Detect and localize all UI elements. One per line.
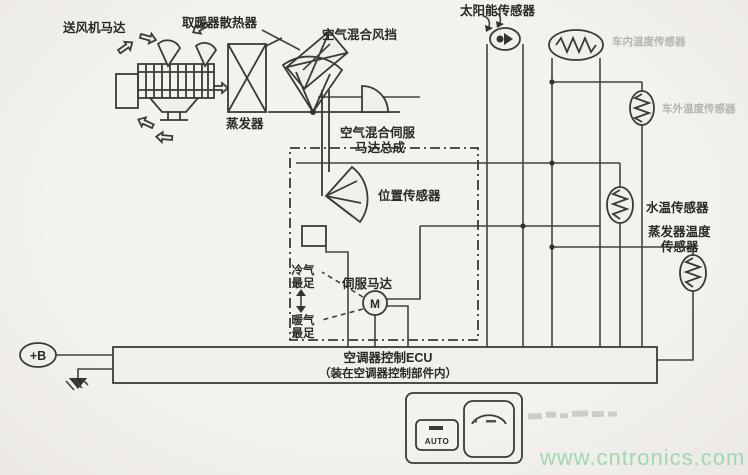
evaporator-label: 蒸发器 [226, 116, 264, 131]
position-sensor-drawing [302, 167, 368, 246]
control-panel: AUTO [406, 393, 522, 463]
air-mix-servo-label-2: 马达总成 [355, 140, 406, 155]
ground-icon [66, 378, 88, 390]
auto-button: AUTO [416, 420, 458, 450]
cabin-temp-sensor-icon [549, 30, 603, 60]
evaporator-drawing [228, 44, 266, 112]
position-sensor-label: 位置传感器 [378, 188, 441, 203]
cabin-temp-sensor-label: 车内温度传感器 [612, 35, 686, 48]
air-mix-damper-label: 空气混合风挡 [322, 27, 397, 42]
ac-system-diagram: M 冷气 最足 暖气 最足 [0, 0, 748, 475]
max-heat-label-2: 最足 [292, 327, 315, 340]
battery-terminal-label: +B [30, 349, 46, 363]
ecu-box: 空调器控制ECU （装在空调器控制部件内） [113, 347, 657, 383]
watermark: www.cntronics.com [539, 445, 745, 470]
evaporator-temp-sensor-label-2: 传感器 [660, 239, 699, 254]
air-mix-servo-label-1: 空气混合伺服 [340, 125, 416, 140]
diagram-canvas: M 冷气 最足 暖气 最足 [0, 0, 748, 475]
temp-dial [464, 401, 514, 457]
ecu-subtitle: （装在空调器控制部件内） [319, 366, 457, 380]
motor-symbol: M [370, 297, 380, 311]
evaporator-temp-sensor-label-1: 蒸发器温度 [648, 224, 711, 239]
max-cool-label-2: 最足 [292, 277, 315, 290]
double-arrow-icon [296, 289, 306, 313]
damper-range-indicator: 冷气 最足 暖气 最足 [292, 263, 315, 340]
ambient-temp-sensor-icon [630, 91, 654, 125]
ecu-title: 空调器控制ECU [344, 350, 433, 365]
servo-motor-label: 伺服马达 [341, 276, 393, 291]
ambient-temp-sensor-label: 车外温度传感器 [662, 102, 736, 115]
faint-smudge [528, 409, 617, 419]
evaporator-temp-sensor-icon [680, 255, 706, 291]
airflow-arrow-icon [116, 20, 228, 143]
air-door-icon [362, 86, 388, 112]
water-temp-sensor-label: 水温传感器 [646, 200, 709, 215]
heater-core-label: 取暖器散热器 [182, 15, 258, 30]
water-temp-sensor-icon [607, 187, 633, 223]
blower-motor-label: 送风机马达 [62, 20, 126, 35]
battery-terminal: +B [20, 343, 56, 367]
auto-button-label: AUTO [425, 437, 450, 446]
max-cool-label-1: 冷气 [292, 263, 315, 277]
blower-motor-drawing [116, 20, 228, 143]
solar-sensor-label: 太阳能传感器 [460, 3, 536, 18]
max-heat-label-1: 暖气 [292, 313, 315, 327]
